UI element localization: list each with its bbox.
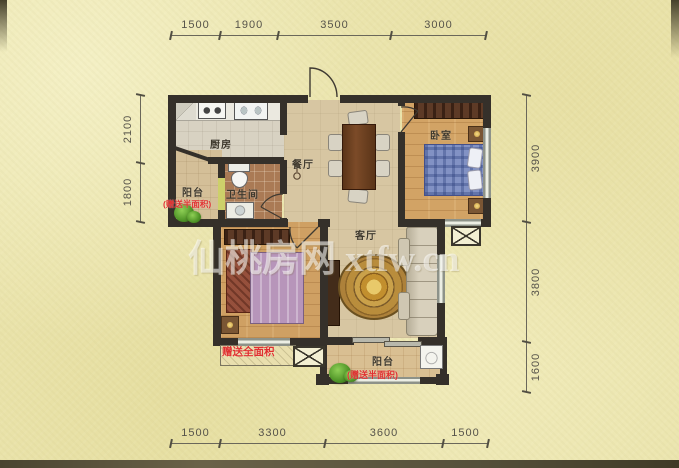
dimension-tick: [486, 439, 490, 448]
dimension-label: 1500: [171, 19, 220, 31]
floorplan-image: 1500 1900 3500 3000 1500 3300 3600 1500 …: [0, 0, 679, 468]
sink-icon: [234, 101, 268, 120]
room-label-balcony-bottom: 阳台: [372, 353, 394, 368]
dimension-label: 3000: [391, 19, 486, 31]
wall-segment: [280, 160, 287, 194]
photo-edge: [671, 0, 679, 58]
dimension-label: 1800: [122, 172, 134, 212]
gift-note-balcony-bottom: (赠送半面积): [347, 368, 398, 381]
wall-pillar: [316, 374, 329, 385]
bathroom-sink-icon: [226, 202, 254, 219]
room-label-kitchen: 厨房: [210, 136, 232, 151]
dimension-label: 3800: [530, 262, 542, 302]
ac-platform: [293, 346, 325, 367]
dimension-label: 1900: [220, 19, 278, 31]
dimension-tick: [484, 31, 488, 40]
wall-segment: [280, 100, 287, 135]
room-label-bedroom: 卧室: [430, 127, 452, 142]
sliding-door-panel: [384, 341, 422, 347]
dining-table: [342, 124, 376, 190]
plant-icon: [187, 211, 201, 223]
dimension-label: 2100: [122, 109, 134, 149]
window: [483, 128, 491, 198]
dining-chair: [375, 160, 390, 177]
wall-segment: [340, 95, 491, 103]
wall-segment: [398, 100, 405, 106]
gift-note-balcony-left: (赠送半面积): [163, 198, 211, 210]
photo-edge: [0, 460, 679, 468]
stove-icon: [198, 102, 226, 119]
dimension-label: 3600: [325, 427, 443, 439]
wall-segment: [320, 337, 354, 345]
gift-note-bedroom-bay: 赠送全面积: [222, 344, 275, 359]
sofa-armchair: [398, 292, 410, 320]
watermark-text: 仙桃房网 xtfw.cn: [188, 228, 459, 282]
dining-chair: [375, 134, 390, 151]
room-label-dining: 餐厅: [292, 156, 314, 171]
dimension-tick: [136, 220, 145, 224]
room-label-bathroom: 卫生间: [226, 186, 259, 201]
wall-pillar: [436, 374, 449, 385]
corner-cabinet: [176, 100, 196, 120]
wardrobe: [414, 101, 484, 119]
dimension-tick: [522, 390, 531, 394]
wall-segment: [168, 95, 308, 103]
balcony-door: [218, 178, 225, 210]
wall-segment: [222, 219, 288, 227]
washing-machine-icon: [420, 345, 443, 369]
dimension-label: 1600: [530, 347, 542, 387]
dimension-line: [526, 95, 527, 392]
dimension-label: 3500: [278, 19, 391, 31]
nightstand: [221, 316, 239, 334]
photo-edge: [0, 0, 7, 52]
dimension-line: [140, 95, 141, 222]
dimension-label: 3300: [220, 427, 325, 439]
dining-chair: [328, 160, 343, 177]
dimension-label: 3900: [530, 138, 542, 178]
dimension-label: 1500: [171, 427, 220, 439]
room-label-balcony-left: 阳台: [182, 184, 204, 199]
dining-chair: [328, 134, 343, 151]
dining-chair: [347, 188, 368, 204]
dimension-label: 1500: [443, 427, 488, 439]
wall-segment: [418, 337, 447, 345]
pillow: [467, 169, 483, 190]
pillow: [467, 147, 484, 169]
wall-segment: [398, 132, 405, 224]
